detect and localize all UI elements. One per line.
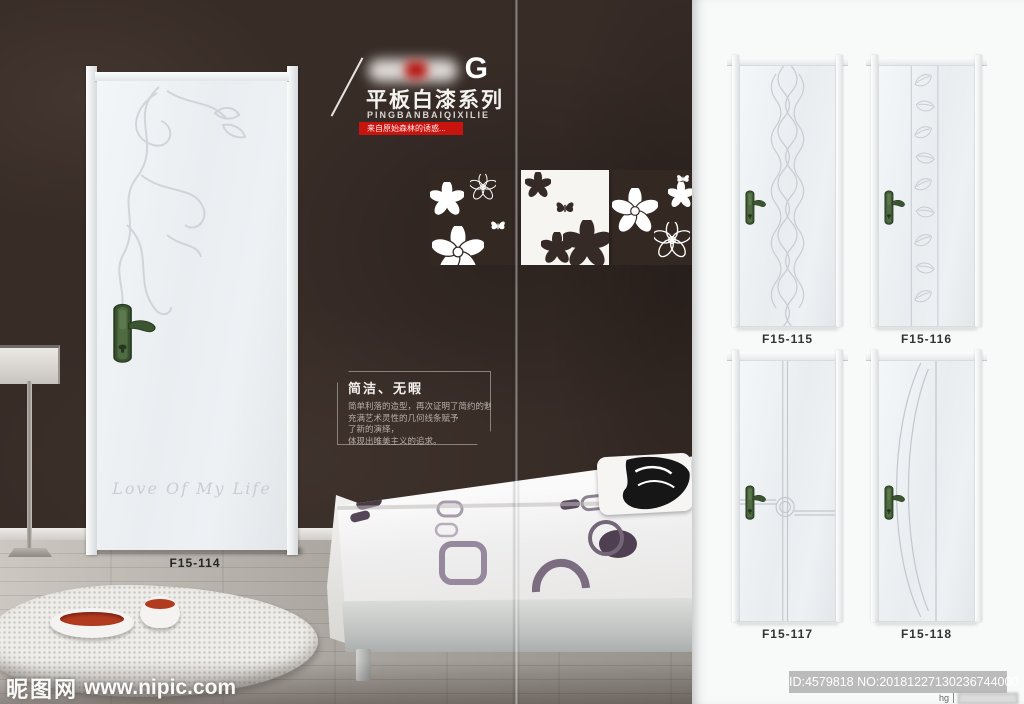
corner-divider <box>953 693 954 703</box>
page-fold-line <box>512 0 520 704</box>
brand-logo: G <box>368 54 488 86</box>
door-floor-shadow <box>737 327 838 330</box>
red-dish-interior <box>60 612 124 626</box>
corner-mark-text: hg <box>939 693 949 703</box>
door-floor-shadow <box>876 622 977 625</box>
catalog-door-4: F15-118 <box>866 350 987 650</box>
feature-title: 简洁、无暇 <box>348 378 480 397</box>
door-slab <box>739 65 836 327</box>
door-handle <box>880 190 906 226</box>
catalog-panel: F15-115 <box>692 0 1024 704</box>
floor-lamp-shade <box>0 345 60 384</box>
pillow <box>597 453 692 516</box>
flower-art-tile-2 <box>521 170 609 265</box>
brand-logo-red-accent <box>405 61 427 79</box>
door-handle <box>741 190 767 226</box>
watermark-site: 昵图网 www.nipic.com <box>6 672 236 704</box>
door-script-text: Love Of My Life <box>97 479 287 498</box>
door-model-label: F15-116 <box>866 332 987 346</box>
door-slab <box>739 360 836 622</box>
door-handle <box>880 485 906 521</box>
corner-mark: hg <box>939 692 1018 704</box>
red-bowl-interior <box>145 599 175 609</box>
door-frame-left <box>86 66 97 555</box>
door-model-label: F15-117 <box>727 627 848 641</box>
flower-art-tile-1 <box>430 170 518 265</box>
series-subtitle: PINGBANBAIQIXILIE <box>367 110 490 120</box>
flower-art-tile-3 <box>612 170 692 265</box>
door-frame-right <box>836 55 843 327</box>
feature-line: 充满艺术灵性的几何线条赋予 <box>348 413 480 425</box>
catalog-door-1: F15-115 <box>727 55 848 355</box>
feature-line: 了新的演绎， <box>348 424 480 436</box>
door-frame-left <box>732 350 739 622</box>
floor-lamp-base <box>8 548 52 557</box>
door-frame-right <box>975 350 982 622</box>
door-slab: Love Of My Life <box>97 81 287 550</box>
catalog-page: Love Of My Life F15-114 G 平板白漆系列 PINGBAN… <box>0 0 1024 704</box>
door-slab <box>878 65 975 327</box>
corner-logo-blurred <box>958 693 1018 704</box>
series-tagline: 来自原始森林的诱惑... <box>359 122 463 135</box>
watermark-id-bar: ID:4579818 NO:20181227130236744000 <box>789 671 1007 693</box>
catalog-door-3: F15-117 <box>727 350 848 650</box>
red-dish <box>50 608 134 638</box>
door-handle <box>741 485 767 521</box>
door-frame-right <box>287 66 298 555</box>
feature-textbox: 简洁、无暇 简单利落的造型，再次证明了简约的魅力。 充满艺术灵性的几何线条赋予 … <box>337 371 491 445</box>
door-model-label: F15-115 <box>727 332 848 346</box>
door-handle <box>104 303 158 365</box>
watermark-site-name: 昵图网 <box>6 672 78 704</box>
door-model-label: F15-118 <box>866 627 987 641</box>
door-frame-right <box>975 55 982 327</box>
door-frame-left <box>871 350 878 622</box>
door-frame-left <box>871 55 878 327</box>
door-slab <box>878 360 975 622</box>
door-frame-right <box>836 350 843 622</box>
showcase-door-model: F15-114 <box>130 556 260 570</box>
door-floor-shadow <box>876 327 977 330</box>
feature-line: 简单利落的造型，再次证明了简约的魅力。 <box>348 401 480 413</box>
watermark-site-url: www.nipic.com <box>84 676 236 700</box>
showcase-door: Love Of My Life <box>86 70 298 555</box>
brand-logo-letter: G <box>465 52 488 86</box>
door-floor-shadow <box>737 622 838 625</box>
door-frame-left <box>732 55 739 327</box>
room-scene: Love Of My Life F15-114 G 平板白漆系列 PINGBAN… <box>0 0 692 704</box>
floral-engraving <box>97 85 247 335</box>
red-bowl <box>140 596 180 628</box>
floor-lamp-pole <box>27 381 32 549</box>
catalog-door-2: F15-116 <box>866 55 987 355</box>
